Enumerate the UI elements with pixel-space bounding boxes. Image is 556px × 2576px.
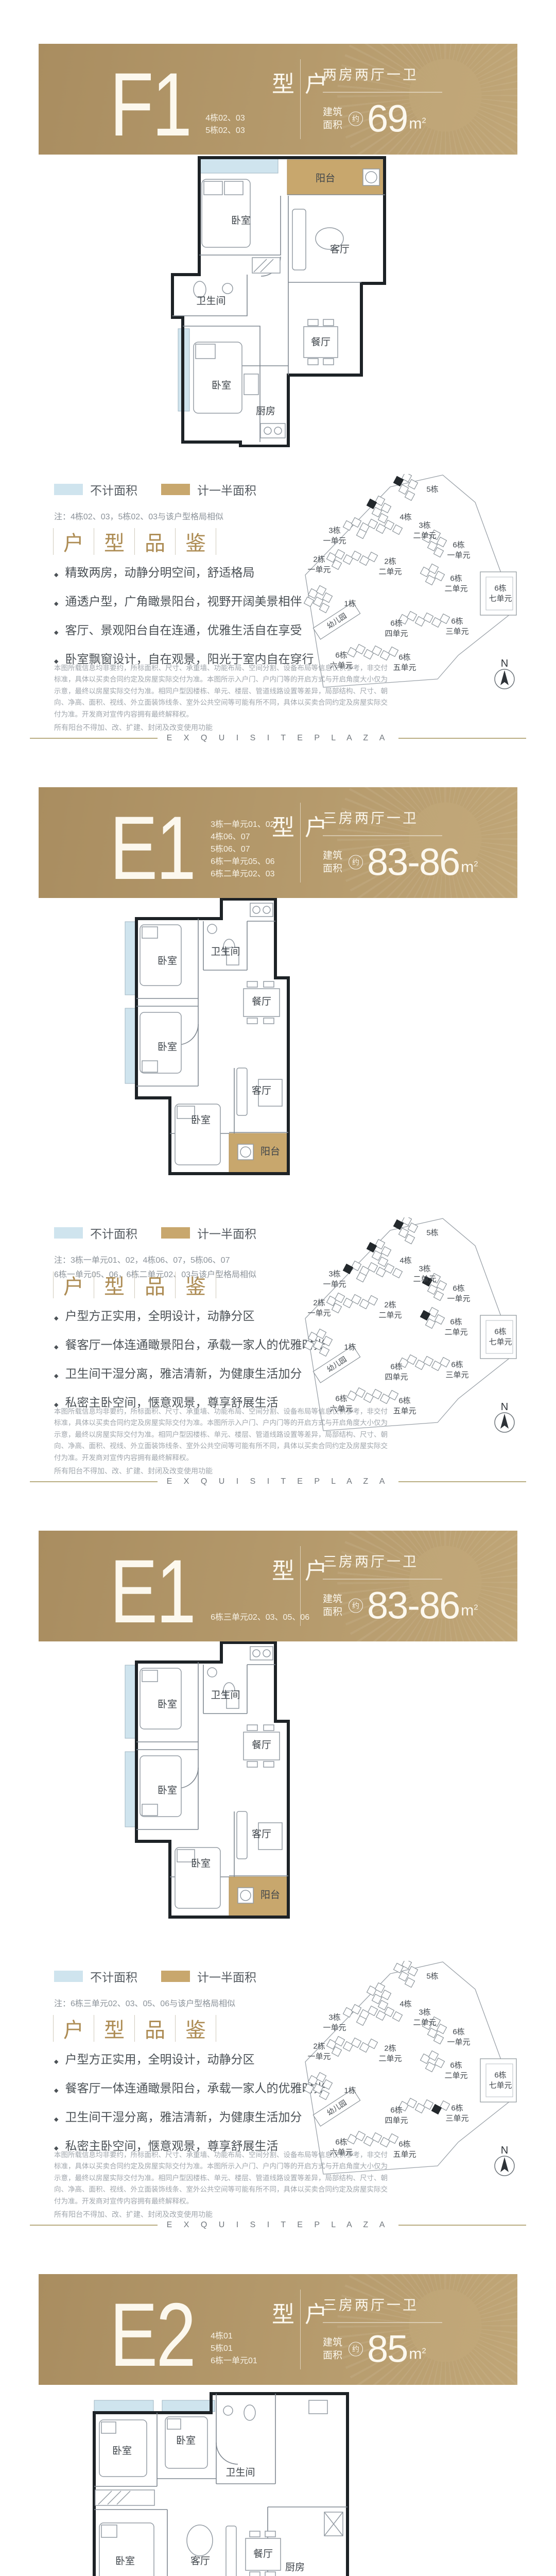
room-label: 卫生间 [196, 295, 225, 307]
footer-brand-text: E X Q U I S I T E P L A Z A [167, 734, 390, 743]
footer-line [398, 738, 526, 739]
unit-code-group: F1 4栋02、03 5栋02、03 [110, 69, 245, 141]
site-building-label: 6栋 三单元 [445, 2104, 468, 2124]
unit-banner: F1 4栋02、03 5栋02、03 户型 两房两厅一卫 建筑 面积 约 69 … [39, 44, 517, 155]
site-building-label: 2栋 二单元 [378, 1300, 402, 1320]
site-plan: 5栋4栋3栋 一单元3栋 二单元6栋 一单元2栋 一单元2栋 二单元6栋 二单元… [303, 1961, 545, 2191]
floor-plan: 卧室 卧室 卫生间 卧室 客厅 餐厅 厨房 阳台 [90, 2381, 358, 2576]
footer-line [30, 2225, 158, 2226]
area-value: 69 [367, 103, 407, 135]
legend-swatch-tan [161, 1971, 190, 1982]
site-building-label: 3栋 二单元 [413, 521, 436, 541]
footer-brand-text: E X Q U I S I T E P L A Z A [167, 2221, 390, 2230]
bullet-icon: ◆ [54, 2087, 58, 2094]
legend-label: 不计面积 [90, 1224, 137, 1242]
bay-window-zones [125, 1665, 135, 1827]
room-label: 阳台 [260, 1889, 280, 1901]
area-value: 83-86 [367, 1589, 459, 1622]
room-config: 三房两厅一卫 [323, 1550, 498, 1570]
spec-divider [323, 835, 442, 836]
room-label: 卧室 [191, 1858, 211, 1869]
north-label: N [501, 1400, 508, 1414]
feature-item: ◆户型方正实用，全明设计，动静分区 [54, 2049, 325, 2067]
unit-buildings: 4栋02、03 5栋02、03 [205, 112, 245, 141]
legend-swatch-tan [161, 1227, 190, 1239]
site-building-label: 6栋 四单元 [385, 1362, 408, 1382]
room-label: 卧室 [158, 1699, 177, 1710]
area-unit: m2 [461, 859, 478, 878]
site-building-label: 5栋 [426, 1228, 438, 1238]
room-label: 餐厅 [253, 2548, 273, 2560]
spec-divider [323, 1579, 442, 1579]
unit-banner: E2 4栋01 5栋01 6栋一单元01 户型 三房两厅一卫 建筑 面积 约 8… [39, 2274, 517, 2385]
site-plan: 5栋4栋3栋 一单元3栋 二单元6栋 一单元2栋 一单元2栋 二单元6栋 二单元… [303, 474, 545, 704]
unit-code-group: E2 4栋01 5栋01 6栋一单元01 [110, 2299, 257, 2371]
brand-footer: E X Q U I S I T E P L A Z A [30, 1477, 526, 1486]
site-building-label: 6栋 五单元 [393, 2140, 416, 2160]
room-label: 卧室 [212, 380, 231, 391]
furniture [140, 1647, 282, 1908]
plan-note: 注：6栋三单元02、03、05、06与该户型格局相似 [54, 1997, 235, 2011]
floor-plan: 卧室 卧室 卫生间 餐厅 客厅 卧室 阳台 [124, 1641, 293, 1922]
brand-footer: E X Q U I S I T E P L A Z A [30, 734, 526, 743]
site-building-label: 1栋 [344, 2086, 356, 2096]
balcony-note: 所有阳台不得加、改、扩建、封闭及改变使用功能 [54, 2209, 213, 2219]
room-config: 三房两厅一卫 [323, 807, 498, 827]
unit-code-group: E1 3栋一单元01、02 4栋06、07 5栋06、07 6栋一单元05、06… [110, 812, 275, 885]
site-building-label: 6栋 七单元 [489, 2071, 512, 2091]
room-label: 卧室 [158, 1785, 177, 1796]
unit-card-e2: E2 4栋01 5栋01 6栋一单元01 户型 三房两厅一卫 建筑 面积 约 8… [0, 2230, 556, 2576]
room-label: 卧室 [231, 215, 251, 226]
site-building-label: 4栋 [399, 1256, 411, 1266]
north-label: N [501, 2144, 508, 2157]
footer-line [398, 1481, 526, 1482]
site-building-label: 6栋 六单元 [329, 651, 353, 671]
room-label: 卧室 [158, 1041, 177, 1053]
unit-code: E1 [110, 1556, 195, 1628]
site-building-label: 2栋 一单元 [307, 555, 331, 575]
feature-list: ◆户型方正实用，全明设计，动静分区 ◆餐客厅一体连通瞰景阳台，承载一家人的优雅时… [54, 1306, 325, 1421]
unit-spec: 三房两厅一卫 建筑 面积 约 85 m2 [323, 2294, 498, 2365]
room-label: 餐厅 [311, 336, 331, 348]
legend-label: 计一半面积 [197, 481, 256, 498]
banner-divider [300, 2290, 301, 2369]
area-label: 建筑 面积 [323, 1592, 342, 1618]
area-unit: m2 [461, 1602, 478, 1622]
room-label: 卧室 [112, 2445, 132, 2456]
plan-legend: 不计面积 计一半面积 [54, 1968, 256, 1985]
feature-item: ◆卫生间干湿分离，雅洁清新，为健康生活加分 [54, 2107, 325, 2125]
site-building-label: 6栋 二单元 [444, 1317, 467, 1337]
legend-swatch-blue [54, 1227, 83, 1239]
room-label: 客厅 [190, 2555, 210, 2567]
area-unit: m2 [409, 2346, 426, 2365]
unit-type-label: 户型 [264, 1558, 330, 1614]
site-plan: 5栋4栋3栋 一单元3栋 二单元6栋 一单元2栋 一单元2栋 二单元6栋 二单元… [303, 1217, 545, 1448]
unit-type-label: 户型 [264, 815, 330, 871]
unit-code: E1 [110, 812, 195, 885]
bullet-icon: ◆ [54, 629, 58, 636]
feature-item: ◆户型方正实用，全明设计，动静分区 [54, 1306, 325, 1324]
feature-item: ◆餐客厅一体连通瞰景阳台，承载一家人的优雅时光 [54, 2078, 325, 2096]
section-heading: 户 型 品 鉴 [53, 527, 216, 556]
site-building-label: 4栋 [399, 512, 411, 522]
spec-divider [323, 92, 442, 92]
room-label: 餐厅 [252, 1739, 271, 1751]
feature-item: ◆精致两房，动静分明空间，舒适格局 [54, 563, 314, 580]
footer-line [30, 738, 158, 739]
site-building-label: 6栋 五单元 [393, 1396, 416, 1416]
legend-label: 计一半面积 [197, 1968, 256, 1985]
room-label: 卧室 [191, 1114, 211, 1126]
bullet-icon: ◆ [54, 600, 58, 607]
footer-brand-text: E X Q U I S I T E P L A Z A [167, 1477, 390, 1486]
unit-card-e1b: E1 6栋三单元02、03、05、06 户型 三房两厅一卫 建筑 面积 约 83… [0, 1487, 556, 2230]
banner-divider [300, 59, 301, 139]
site-building-label: 6栋 三单元 [445, 617, 468, 637]
feature-item: ◆通透户型，广角瞰景阳台，视野开阔美景相伴 [54, 591, 314, 609]
bullet-icon: ◆ [54, 1372, 58, 1379]
room-config: 两房两厅一卫 [323, 63, 498, 83]
unit-card-e1: E1 3栋一单元01、02 4栋06、07 5栋06、07 6栋一单元05、06… [0, 743, 556, 1487]
unit-code: E2 [110, 2299, 195, 2371]
site-building-label: 6栋 七单元 [489, 584, 512, 604]
bullet-icon: ◆ [54, 1315, 58, 1321]
unit-buildings: 4栋01 5栋01 6栋一单元01 [211, 2330, 257, 2371]
room-label: 客厅 [252, 1828, 271, 1840]
plan-legend: 不计面积 计一半面积 [54, 481, 256, 498]
floor-plan-svg: 卧室 卧室 卫生间 餐厅 客厅 卧室 阳台 [124, 898, 293, 1179]
unit-buildings: 6栋三单元02、03、05、06 [211, 1612, 309, 1628]
legend-label: 不计面积 [90, 1968, 137, 1985]
room-label: 客厅 [252, 1085, 271, 1096]
unit-spec: 三房两厅一卫 建筑 面积 约 83-86 m2 [323, 1550, 498, 1622]
floor-plan: 卧室 阳台 客厅 卫生间 卧室 餐厅 厨房 [170, 154, 391, 447]
bullet-icon: ◆ [54, 2058, 58, 2065]
room-label: 卫生间 [211, 946, 240, 957]
unit-banner: E1 6栋三单元02、03、05、06 户型 三房两厅一卫 建筑 面积 约 83… [39, 1531, 517, 1641]
approx-badge: 约 [349, 1598, 363, 1613]
site-building-label: 5栋 [426, 1971, 438, 1981]
site-building-label: 5栋 [426, 484, 438, 495]
north-label: N [501, 657, 508, 670]
section-heading: 户 型 品 鉴 [53, 1270, 216, 1300]
legend-swatch-blue [54, 1971, 83, 1982]
feature-item: ◆客厅、景观阳台自在连通，优雅生活自在享受 [54, 620, 314, 638]
site-building-label: 3栋 二单元 [413, 1264, 436, 1284]
balcony-note: 所有阳台不得加、改、扩建、封闭及改变使用功能 [54, 1466, 213, 1476]
site-building-label: 6栋 二单元 [444, 574, 467, 594]
site-building-label: 6栋 二单元 [444, 2061, 467, 2081]
site-building-label: 3栋 一单元 [323, 1269, 346, 1290]
site-building-label: 2栋 一单元 [307, 1298, 331, 1318]
site-building-label: 1栋 [344, 1342, 356, 1352]
legend-label: 计一半面积 [197, 1224, 256, 1242]
approx-badge: 约 [349, 111, 363, 126]
room-label: 卫生间 [211, 1689, 240, 1701]
room-label: 卧室 [158, 955, 177, 967]
feature-list: ◆精致两房，动静分明空间，舒适格局 ◆通透户型，广角瞰景阳台，视野开阔美景相伴 … [54, 563, 314, 678]
legend-label: 不计面积 [90, 481, 137, 498]
room-label: 卧室 [115, 2555, 135, 2567]
section-heading: 户 型 品 鉴 [53, 2013, 216, 2043]
area-label: 建筑 面积 [323, 2336, 342, 2362]
unit-spec: 三房两厅一卫 建筑 面积 约 83-86 m2 [323, 807, 498, 878]
site-building-label: 6栋 七单元 [489, 1327, 512, 1347]
site-building-label: 6栋 一单元 [447, 1284, 470, 1304]
banner-divider [300, 803, 301, 883]
site-building-label: 3栋 一单元 [323, 2013, 346, 2033]
area-label: 建筑 面积 [323, 849, 342, 875]
footer-line [398, 2225, 526, 2226]
room-label: 阳台 [260, 1146, 280, 1157]
room-label: 餐厅 [252, 996, 271, 1007]
unit-type-label: 户型 [264, 72, 330, 127]
site-building-label: 2栋 二单元 [378, 2044, 402, 2064]
area-row: 建筑 面积 约 85 m2 [323, 2333, 498, 2365]
feature-list: ◆户型方正实用，全明设计，动静分区 ◆餐客厅一体连通瞰景阳台，承载一家人的优雅时… [54, 2049, 325, 2165]
area-label: 建筑 面积 [323, 106, 342, 131]
legend-swatch-blue [54, 484, 83, 495]
room-label: 阳台 [316, 173, 335, 184]
site-building-label: 6栋 五单元 [393, 653, 416, 673]
site-building-label: 3栋 二单元 [413, 2008, 436, 2028]
unit-spec: 两房两厅一卫 建筑 面积 约 69 m2 [323, 63, 498, 135]
unit-card-f1: F1 4栋02、03 5栋02、03 户型 两房两厅一卫 建筑 面积 约 69 … [0, 0, 556, 743]
site-building-label: 6栋 四单元 [385, 619, 408, 639]
spec-divider [323, 2322, 442, 2323]
approx-badge: 约 [349, 855, 363, 869]
area-row: 建筑 面积 约 83-86 m2 [323, 1589, 498, 1622]
brochure-page: F1 4栋02、03 5栋02、03 户型 两房两厅一卫 建筑 面积 约 69 … [0, 0, 556, 2576]
site-building-label: 2栋 一单元 [307, 2042, 331, 2062]
feature-item: ◆卫生间干湿分离，雅洁清新，为健康生活加分 [54, 1364, 325, 1381]
bullet-icon: ◆ [54, 1344, 58, 1350]
room-label: 卧室 [176, 2435, 196, 2446]
approx-badge: 约 [349, 2342, 363, 2356]
room-label: 厨房 [285, 2562, 305, 2573]
floor-plan-svg: 卧室 卧室 卫生间 卧室 客厅 餐厅 厨房 阳台 [90, 2381, 358, 2576]
furniture [95, 2400, 343, 2576]
room-label: 厨房 [256, 405, 275, 417]
furniture [140, 903, 282, 1165]
site-building-label: 2栋 二单元 [378, 557, 402, 577]
floor-plan-svg: 卧室 卧室 卫生间 餐厅 客厅 卧室 阳台 [124, 1641, 293, 1922]
site-building-label: 6栋 一单元 [447, 540, 470, 561]
room-label: 卫生间 [225, 2467, 255, 2478]
unit-banner: E1 3栋一单元01、02 4栋06、07 5栋06、07 6栋一单元05、06… [39, 787, 517, 898]
plan-legend: 不计面积 计一半面积 [54, 1224, 256, 1242]
area-row: 建筑 面积 约 83-86 m2 [323, 846, 498, 878]
site-building-label: 6栋 六单元 [329, 1394, 353, 1414]
balcony-note: 所有阳台不得加、改、扩建、封闭及改变使用功能 [54, 722, 213, 733]
bullet-icon: ◆ [54, 2116, 58, 2123]
unit-type-label: 户型 [264, 2302, 330, 2358]
footer-line [30, 1481, 158, 1482]
floor-plan-svg: 卧室 阳台 客厅 卫生间 卧室 餐厅 厨房 [170, 154, 391, 447]
area-row: 建筑 面积 约 69 m2 [323, 103, 498, 135]
site-building-label: 6栋 一单元 [447, 2027, 470, 2047]
brand-footer: E X Q U I S I T E P L A Z A [30, 2221, 526, 2230]
site-building-label: 1栋 [344, 599, 356, 609]
room-label: 客厅 [330, 244, 350, 255]
room-config: 三房两厅一卫 [323, 2294, 498, 2314]
unit-code: F1 [110, 69, 190, 141]
floor-plan: 卧室 卧室 卫生间 餐厅 客厅 卧室 阳台 [124, 898, 293, 1179]
site-building-label: 6栋 六单元 [329, 2138, 353, 2158]
bullet-icon: ◆ [54, 571, 58, 578]
bay-window-zones [125, 922, 135, 1083]
area-value: 85 [367, 2333, 407, 2365]
banner-divider [300, 1546, 301, 1626]
site-building-label: 4栋 [399, 1999, 411, 2009]
site-building-label: 6栋 四单元 [385, 2106, 408, 2126]
site-building-label: 6栋 三单元 [445, 1360, 468, 1380]
site-building-label: 3栋 一单元 [323, 526, 346, 546]
legend-swatch-tan [161, 484, 190, 495]
feature-item: ◆餐客厅一体连通瞰景阳台，承载一家人的优雅时光 [54, 1335, 325, 1352]
area-unit: m2 [409, 115, 426, 135]
plan-note: 注：4栋02、03，5栋02、03与该户型格局相似 [54, 510, 223, 524]
area-value: 83-86 [367, 846, 459, 878]
